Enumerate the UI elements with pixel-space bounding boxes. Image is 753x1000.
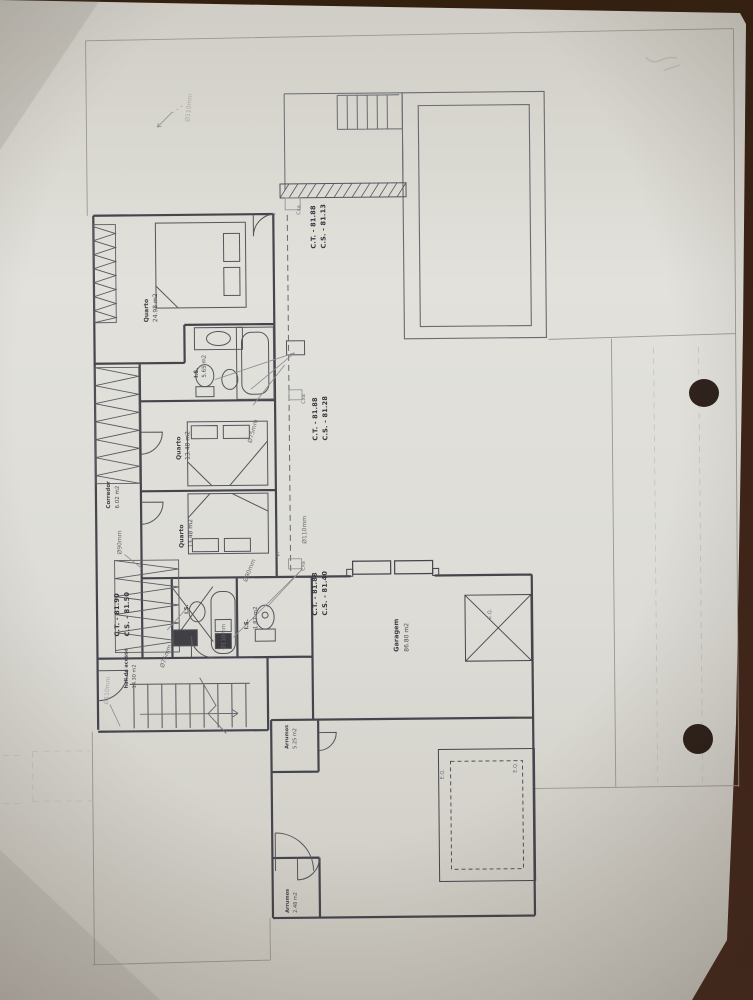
photo-of-floor-plan: C.T. - 81.88 C.S. - 81.13 C.T. - 81.88 C…	[0, 0, 753, 1000]
dark-clip-blob-upper	[689, 379, 719, 407]
photo-vignette	[0, 0, 753, 1000]
dark-clip-blob-lower	[683, 724, 713, 754]
floorplan-photo: C.T. - 81.88 C.S. - 81.13 C.T. - 81.88 C…	[0, 0, 753, 1000]
